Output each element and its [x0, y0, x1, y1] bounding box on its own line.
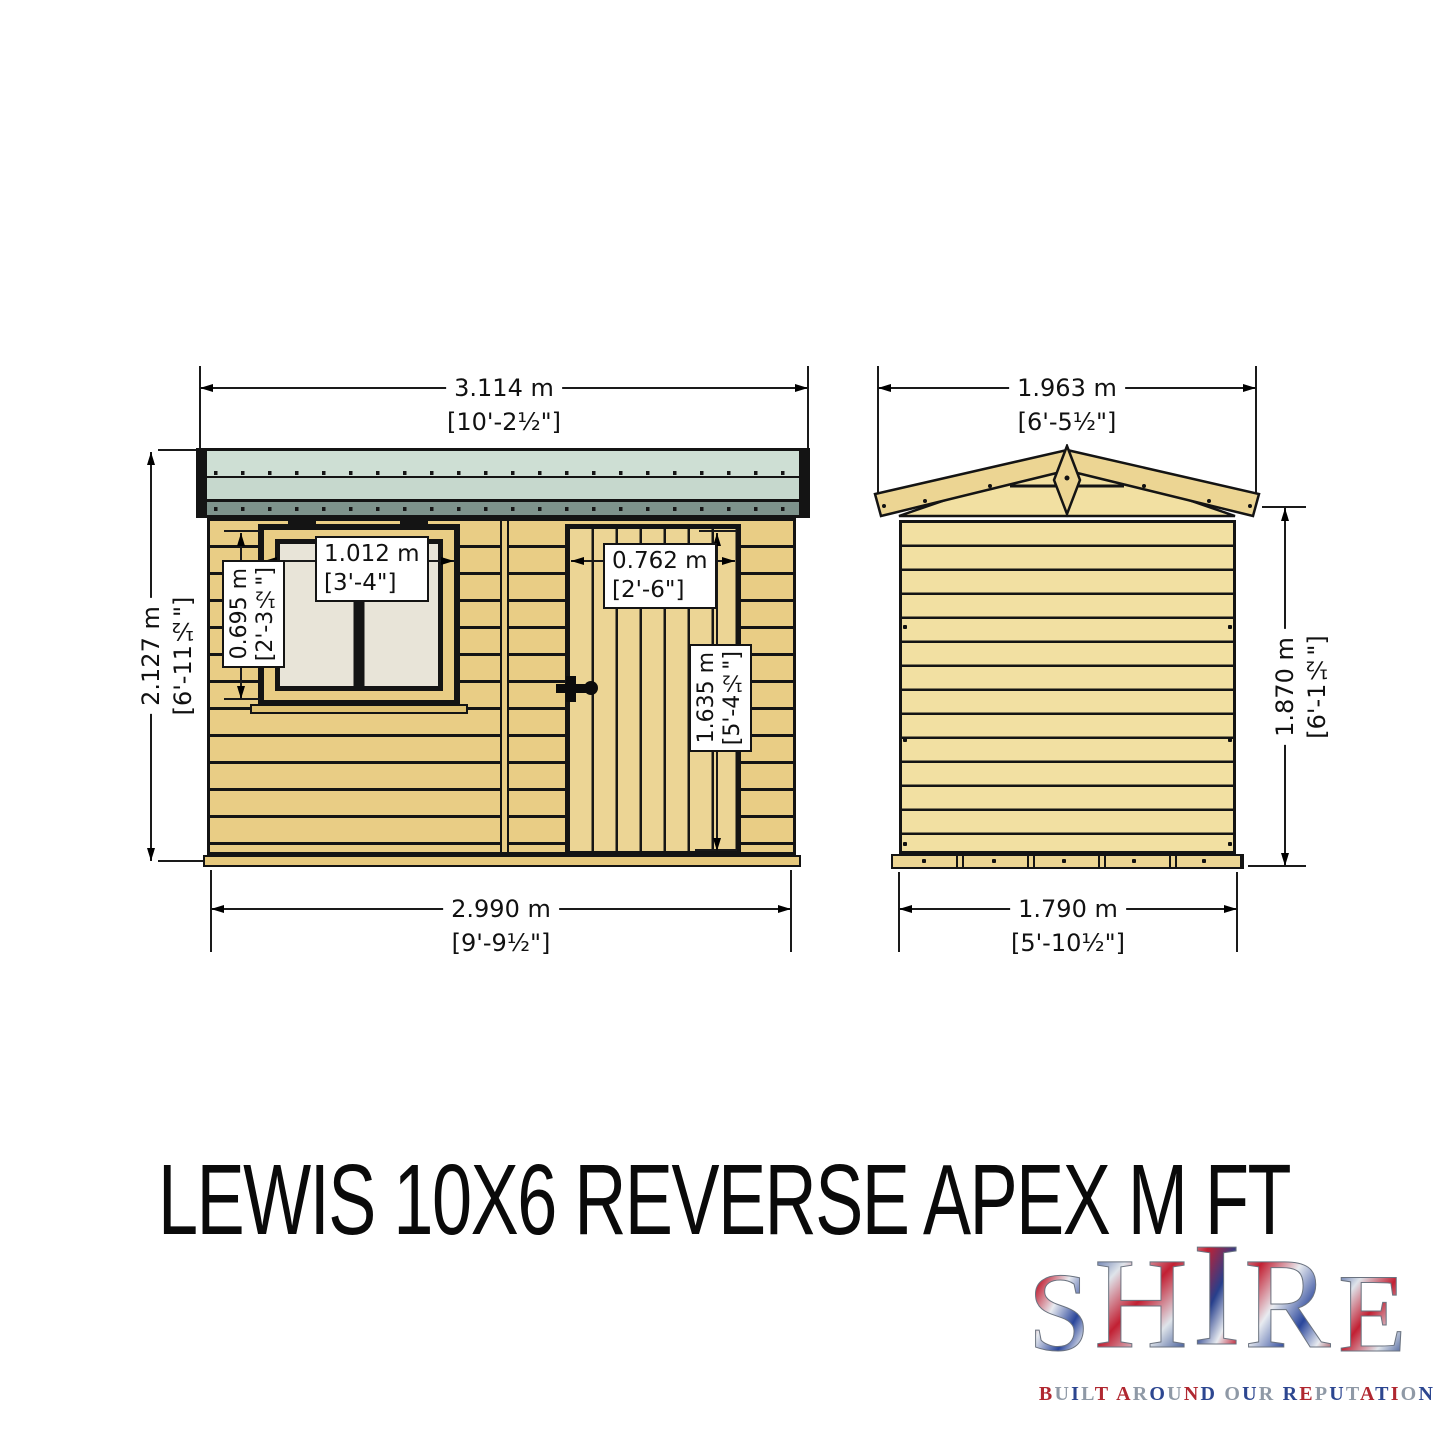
dim-front-width-imperial: [10'-2½"]: [447, 408, 561, 436]
arrowhead-icon: [147, 848, 155, 861]
extension-line: [1248, 865, 1306, 867]
dim-side-height-imperial: [6'-1½"]: [1303, 635, 1331, 739]
logo-letter-r: R: [1244, 1232, 1331, 1376]
corner-nail: [903, 625, 907, 629]
extension-line: [158, 449, 198, 451]
arrowhead-icon: [211, 905, 224, 913]
roof-nail-row: [214, 471, 792, 475]
arrowhead-icon: [441, 557, 454, 565]
door-latch-knob: [584, 681, 598, 695]
bearer-nail: [992, 859, 996, 863]
extension-line: [199, 366, 201, 450]
arrowhead-icon: [200, 384, 213, 392]
dim-side-base-imperial: [5'-10½"]: [1011, 929, 1125, 957]
extension-line: [807, 366, 809, 450]
arrowhead-icon: [722, 557, 735, 565]
side-wall-cladding: [899, 520, 1236, 854]
logo-letter-e: E: [1338, 1252, 1406, 1376]
bearer-nail: [922, 859, 926, 863]
arrowhead-icon: [571, 557, 584, 565]
dim-side-width-metric: 1.963 m: [1009, 373, 1125, 403]
corner-nail: [1228, 738, 1232, 742]
window-width-metric: 1.012 m: [324, 540, 420, 569]
bearer-nail: [1062, 859, 1066, 863]
window-sill: [250, 704, 468, 714]
arrowhead-icon: [147, 452, 155, 465]
window-width-label: 1.012 m [3'-4"]: [315, 536, 429, 602]
barge-nail: [1248, 504, 1252, 508]
side-roof: [870, 444, 1270, 528]
dim-front-height-imperial: [6'-11½"]: [169, 597, 197, 716]
door-width-metric: 0.762 m: [612, 547, 708, 576]
extension-tick: [224, 530, 260, 532]
door-height-imperial: [5'-4½"]: [720, 651, 746, 745]
extension-line: [158, 860, 205, 862]
door-height-label: 1.635 m [5'-4½"]: [689, 644, 752, 752]
door-latch-plate: [566, 676, 576, 702]
roof-felt-band-lower: [207, 478, 799, 502]
window-height-metric: 0.695 m: [227, 568, 253, 659]
extension-tick: [699, 530, 737, 532]
arrowhead-icon: [1243, 384, 1256, 392]
dim-side-width-imperial: [6'-5½"]: [1018, 408, 1117, 436]
door-height-metric: 1.635 m: [694, 652, 720, 743]
arrowhead-icon: [1281, 853, 1289, 866]
arrowhead-icon: [237, 686, 245, 699]
arrowhead-icon: [1281, 508, 1289, 521]
arrowhead-icon: [899, 905, 912, 913]
shire-logo: S H I R E BUILT AROUND OUR REPUTATION: [1028, 1228, 1445, 1428]
arrowhead-icon: [778, 905, 791, 913]
window-hinge-right: [400, 517, 428, 526]
drawing-canvas: 3.114 m [10'-2½"] 2.127 m [6'-11½"]: [0, 0, 1445, 1445]
dim-front-width-metric: 3.114 m: [446, 373, 562, 403]
door-width-imperial: [2'-6"]: [612, 576, 708, 605]
arrowhead-icon: [713, 838, 721, 851]
fascia-nail-row: [214, 507, 792, 511]
roof-end-cap-left: [196, 448, 207, 518]
front-roof: [196, 448, 810, 518]
arrowhead-icon: [878, 384, 891, 392]
dim-side-height-metric: 1.870 m: [1270, 629, 1300, 745]
logo-tagline: BUILT AROUND OUR REPUTATION: [1039, 1383, 1435, 1405]
window-height-imperial: [2'-3½"]: [253, 567, 279, 661]
front-floor-bearer: [203, 855, 801, 867]
dim-side-base-metric: 1.790 m: [1010, 894, 1126, 924]
arrowhead-icon: [795, 384, 808, 392]
logo-letter-s: S: [1028, 1251, 1090, 1375]
barge-nail: [1207, 499, 1211, 503]
barge-nail: [882, 504, 886, 508]
finial-nail: [1065, 476, 1070, 481]
window-height-label: 0.695 m [2'-3½"]: [222, 560, 285, 668]
corner-nail: [903, 842, 907, 846]
roof-end-cap-right: [799, 448, 810, 518]
corner-nail: [903, 738, 907, 742]
dim-front-base-imperial: [9'-9½"]: [452, 929, 551, 957]
barge-nail: [1142, 484, 1146, 488]
logo-letter-i: I: [1192, 1228, 1241, 1377]
wall-panel-divider: [500, 521, 509, 852]
bearer-nail: [1132, 859, 1136, 863]
barge-nail: [923, 499, 927, 503]
corner-nail: [1228, 625, 1232, 629]
bearer-nail: [1202, 859, 1206, 863]
barge-nail: [988, 484, 992, 488]
arrowhead-icon: [1224, 905, 1237, 913]
corner-nail: [1228, 842, 1232, 846]
window-width-imperial: [3'-4"]: [324, 569, 420, 598]
window-hinge-left: [288, 517, 316, 526]
logo-letter-h: H: [1094, 1232, 1188, 1376]
door-width-label: 0.762 m [2'-6"]: [603, 543, 717, 609]
arrowhead-icon: [237, 533, 245, 546]
dim-front-height-metric: 2.127 m: [136, 598, 166, 714]
dim-front-base-metric: 2.990 m: [443, 894, 559, 924]
side-floor-bearer: [891, 854, 1244, 869]
